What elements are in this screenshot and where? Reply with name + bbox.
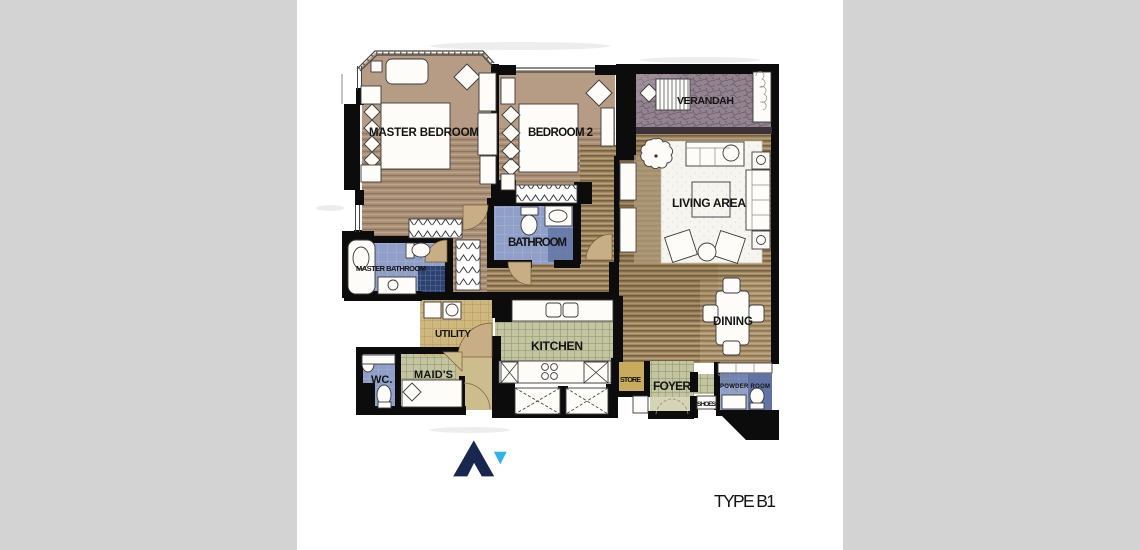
svg-text:BATHROOM: BATHROOM (508, 237, 567, 249)
svg-text:DINING: DINING (713, 316, 753, 328)
svg-text:FOYER: FOYER (653, 379, 691, 393)
svg-text:MASTER BATHROOM: MASTER BATHROOM (356, 264, 426, 273)
svg-text:KITCHEN: KITCHEN (531, 339, 583, 353)
svg-text:LIVING AREA: LIVING AREA (672, 196, 746, 210)
svg-text:MAID'S: MAID'S (414, 369, 453, 381)
svg-text:UTILITY: UTILITY (435, 329, 471, 340)
svg-text:BEDROOM 2: BEDROOM 2 (528, 127, 593, 139)
svg-text:VERANDAH: VERANDAH (677, 95, 734, 107)
svg-text:POWDER ROOM: POWDER ROOM (720, 384, 770, 390)
svg-text:SHOES: SHOES (697, 401, 717, 408)
svg-text:MASTER BEDROOM: MASTER BEDROOM (369, 127, 479, 139)
svg-text:WC.: WC. (371, 374, 392, 386)
svg-text:TYPE B1: TYPE B1 (714, 491, 776, 511)
svg-text:STORE: STORE (620, 377, 641, 384)
